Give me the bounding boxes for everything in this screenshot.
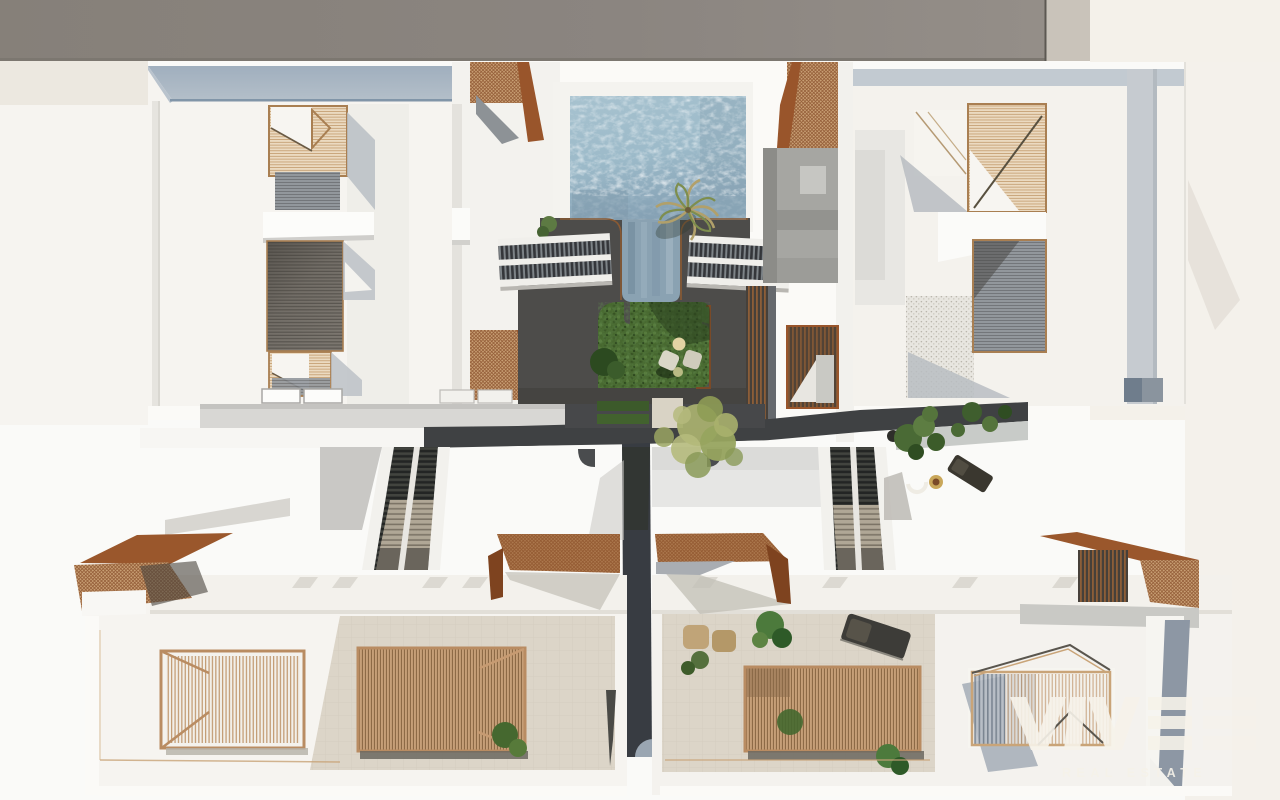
svg-text:REAL ESTATE: REAL ESTATE	[1062, 766, 1207, 780]
